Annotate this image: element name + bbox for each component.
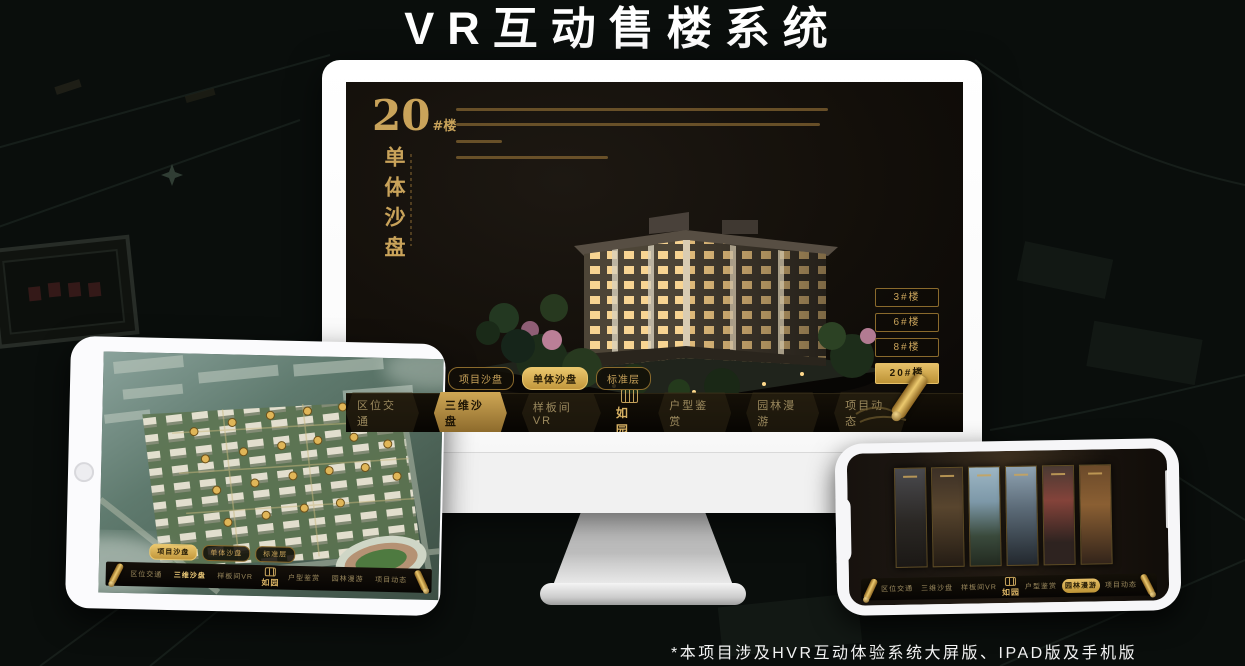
nav-item-3d-sandbox[interactable]: 三维沙盘: [918, 581, 956, 596]
nav-item-location-traffic[interactable]: 区位交通: [127, 567, 165, 582]
scene-panel-gate[interactable]: [1042, 465, 1076, 566]
logo-seal-icon: [1005, 576, 1016, 585]
nav-item-project-news[interactable]: 项目动态: [372, 573, 410, 588]
sandbox-subtab-group-tablet: 项目沙盘 单体沙盘 标准层: [149, 544, 295, 563]
brand-logo-name: 如园: [1002, 586, 1020, 597]
bottom-nav-bar-phone: 区位交通 三维沙盘 样板间VR 如园 户型鉴赏 园林漫游 项目动态: [861, 573, 1157, 600]
nav-item-3d-sandbox[interactable]: 三维沙盘: [434, 392, 507, 432]
brand-logo: 如园: [616, 389, 643, 433]
nav-item-location-traffic[interactable]: 区位交通: [878, 582, 916, 597]
scene-panel-interior[interactable]: [894, 467, 928, 568]
scroll-ornament-icon[interactable]: [413, 569, 429, 592]
scene-panel-tower[interactable]: [1005, 465, 1039, 566]
nav-item-project-news[interactable]: 项目动态: [1102, 578, 1140, 593]
brand-logo-name: 如园: [616, 404, 643, 433]
block-title-english-decor: [410, 154, 412, 246]
tab-standard-floor[interactable]: 标准层: [255, 546, 295, 563]
tab-project-sandbox[interactable]: 项目沙盘: [448, 367, 514, 390]
logo-seal-icon: [265, 567, 276, 576]
scroll-ornament-icon[interactable]: [108, 562, 124, 585]
description-text-line: [456, 140, 502, 143]
block-number-suffix: #楼: [432, 119, 456, 134]
brand-logo: 如园: [261, 567, 279, 588]
block-heading: 20#楼: [372, 94, 456, 138]
scroll-ornament-icon[interactable]: [1139, 573, 1155, 596]
scene-panel-study[interactable]: [1079, 464, 1113, 565]
sales-app-screen-phone: 区位交通 三维沙盘 样板间VR 如园 户型鉴赏 园林漫游 项目动态: [847, 448, 1170, 606]
brand-logo: 如园: [1002, 576, 1020, 597]
brand-logo-name: 如园: [261, 577, 279, 588]
scene-panel-strip: [894, 464, 1113, 568]
nav-item-garden-tour[interactable]: 园林漫游: [1062, 578, 1100, 593]
tab-single-building-sandbox[interactable]: 单体沙盘: [202, 545, 250, 562]
monitor-stand-neck: [549, 512, 737, 586]
sales-app-screen-tablet: 项目沙盘 单体沙盘 标准层 区位交通 三维沙盘 样板间VR 如园 户型鉴赏 园林…: [98, 352, 443, 601]
phone-notch: [835, 497, 851, 563]
floor-button-8[interactable]: 8#楼: [875, 338, 939, 357]
tab-single-building-sandbox[interactable]: 单体沙盘: [522, 367, 588, 390]
block-number: 20: [372, 91, 430, 140]
nav-item-showroom-vr[interactable]: 样板间VR: [522, 394, 601, 432]
nav-item-location-traffic[interactable]: 区位交通: [346, 392, 419, 432]
footnote-text: *本项目涉及HVR互动体验系统大屏版、IPAD版及手机版: [671, 639, 1137, 663]
page-title: VR互动售楼系统: [0, 0, 1245, 58]
tablet-device: 项目沙盘 单体沙盘 标准层 区位交通 三维沙盘 样板间VR 如园 户型鉴赏 园林…: [65, 336, 446, 616]
scene-panel-lobby[interactable]: [931, 467, 965, 568]
tablet-home-button[interactable]: [74, 462, 94, 482]
scroll-ornament-icon[interactable]: [863, 578, 879, 601]
block-title-vertical: 单体沙盘: [379, 146, 409, 266]
nav-item-garden-tour[interactable]: 园林漫游: [328, 572, 366, 587]
sandbox-subtab-group: 项目沙盘 单体沙盘 标准层: [448, 367, 651, 390]
nav-item-showroom-vr[interactable]: 样板间VR: [214, 569, 256, 584]
poster-canvas: VR互动售楼系统 20#楼 单体沙盘: [0, 0, 1245, 666]
nav-item-unit-plans[interactable]: 户型鉴赏: [285, 571, 323, 586]
phone-device: 区位交通 三维沙盘 样板间VR 如园 户型鉴赏 园林漫游 项目动态: [835, 438, 1182, 616]
phone-side-indicator: [1165, 470, 1169, 528]
nav-item-showroom-vr[interactable]: 样板间VR: [958, 580, 1000, 595]
nav-item-3d-sandbox[interactable]: 三维沙盘: [171, 568, 209, 583]
nav-item-unit-plans[interactable]: 户型鉴赏: [1022, 579, 1060, 594]
nav-item-garden-tour[interactable]: 园林漫游: [746, 392, 819, 432]
scene-panel-exterior[interactable]: [968, 466, 1002, 567]
monitor-stand-base: [540, 583, 746, 605]
floor-button-3[interactable]: 3#楼: [875, 288, 939, 307]
description-text-line: [456, 123, 820, 126]
floor-button-20-active[interactable]: 20#楼: [875, 363, 939, 384]
description-text-line: [456, 108, 828, 111]
tab-standard-floor[interactable]: 标准层: [596, 367, 651, 390]
tab-project-sandbox[interactable]: 项目沙盘: [149, 544, 197, 561]
floor-button-6[interactable]: 6#楼: [875, 313, 939, 332]
nav-item-unit-plans[interactable]: 户型鉴赏: [658, 392, 731, 432]
floor-button-group: 3#楼 6#楼 8#楼 20#楼: [874, 288, 940, 384]
logo-seal-icon: [621, 389, 638, 403]
